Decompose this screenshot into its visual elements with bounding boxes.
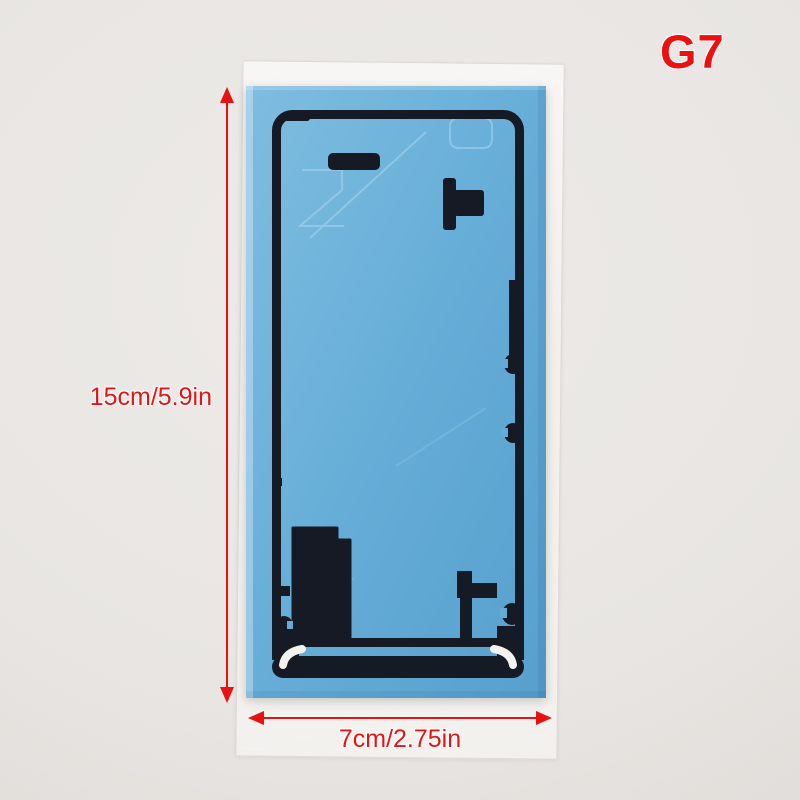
- height-dimension-label: 15cm/5.9in: [70, 383, 212, 412]
- t-pad-block: [454, 190, 484, 216]
- bump-notch: [502, 359, 508, 368]
- height-arrow-down-icon: [220, 687, 234, 703]
- width-dimension-label: 7cm/2.75in: [300, 725, 500, 754]
- width-arrow-left-icon: [248, 711, 264, 725]
- width-arrow-line: [258, 717, 544, 719]
- height-arrow-up-icon: [220, 87, 234, 103]
- sheet-right-edge-shade: [538, 86, 546, 698]
- sheet-top-edge-highlight: [246, 86, 546, 90]
- adhesive-sticker-sheet: [246, 86, 546, 698]
- inner-bottom-line: [279, 638, 517, 647]
- model-name-label: G7: [660, 24, 780, 79]
- width-arrow-right-icon: [536, 711, 552, 725]
- left-rail-step: [272, 478, 282, 486]
- sheet-left-edge-highlight: [246, 86, 253, 698]
- height-arrow-line: [226, 97, 228, 689]
- bump-notch: [287, 621, 293, 629]
- bump-notch: [500, 608, 507, 618]
- product-photo-background: 15cm/5.9in 7cm/2.75in G7: [0, 0, 800, 800]
- battery-pad: [293, 528, 350, 638]
- outer-bottom-bar: [272, 656, 524, 678]
- sheet-bottom-edge-shade: [246, 691, 546, 698]
- bump-notch: [502, 428, 508, 437]
- left-rail-jog: [277, 586, 290, 596]
- right-rail-widening: [509, 280, 519, 360]
- top-notch-tab: [284, 112, 310, 121]
- blue-backing-paper: [246, 86, 546, 698]
- flash-strip-pad: [328, 153, 380, 170]
